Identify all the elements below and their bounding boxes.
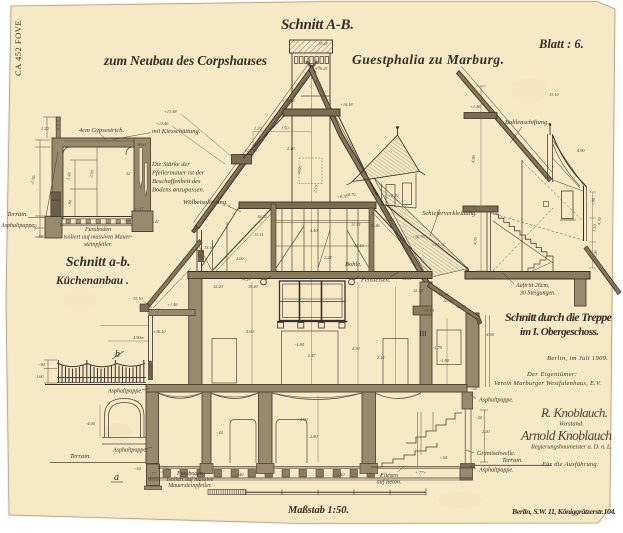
svg-text:Blatt : 6.: Blatt : 6. — [538, 37, 584, 51]
svg-text:13.18: 13.18 — [424, 308, 435, 313]
svg-text:Berlin, S.W. 11, Königgrätzers: Berlin, S.W. 11, Königgrätzerstr.104. — [511, 507, 616, 516]
svg-text:2.24: 2.24 — [324, 255, 332, 260]
svg-text:isoliert auf massive: isoliert auf massive — [167, 476, 214, 483]
svg-text:+13.48: +13.48 — [164, 109, 177, 114]
svg-text:Küchenanbau .: Küchenanbau . — [55, 275, 129, 287]
svg-text:Bodens anzupassen.: Bodens anzupassen. — [152, 187, 205, 194]
svg-text:Fussboden: Fussboden — [84, 227, 111, 233]
svg-text:Bohlenschiftung.: Bohlenschiftung. — [505, 119, 549, 126]
svg-text:Asphaltpappe.: Asphaltpappe. — [107, 389, 143, 395]
svg-text:Fensteisen.: Fensteisen. — [360, 277, 391, 284]
svg-text:Schnitt durch die Treppe: Schnitt durch die Treppe — [505, 310, 613, 324]
svg-text:isoliert auf massiven Mauer-: isoliert auf massiven Mauer- — [63, 234, 132, 241]
svg-text:-.46: -.46 — [124, 218, 132, 223]
svg-text:12.20: 12.20 — [213, 284, 224, 289]
svg-text:-.42: -.42 — [152, 219, 160, 224]
svg-text:2.10: 2.10 — [287, 146, 295, 151]
svg-text:13.10: 13.10 — [549, 92, 560, 97]
svg-text:2.47: 2.47 — [308, 353, 316, 358]
svg-text:4.90: 4.90 — [577, 148, 585, 153]
svg-text:1.40: 1.40 — [236, 472, 244, 477]
svg-text:Der Eigentümer:: Der Eigentümer: — [526, 371, 577, 378]
svg-text:13.10: 13.10 — [204, 245, 215, 250]
svg-text:14.24: 14.24 — [241, 277, 252, 282]
svg-text:Asphaltpappe.: Asphaltpappe. — [478, 468, 514, 474]
svg-text:1.20: 1.20 — [41, 126, 49, 131]
svg-text:2.20: 2.20 — [482, 429, 490, 434]
svg-text:10.46: 10.46 — [370, 223, 381, 228]
svg-text:4cm Gypsestrich.: 4cm Gypsestrich. — [79, 127, 125, 134]
svg-text:-.77: -.77 — [149, 471, 157, 476]
svg-text:12.18: 12.18 — [413, 288, 424, 293]
svg-text:Auftritt 26cm,: Auftritt 26cm, — [515, 282, 550, 289]
svg-text:+-.17: +-.17 — [134, 206, 145, 211]
svg-text:Maßstab 1:50.: Maßstab 1:50. — [287, 505, 349, 516]
svg-text:auf Beton.: auf Beton. — [377, 479, 402, 486]
svg-text:+16.18: +16.18 — [340, 102, 353, 107]
svg-text:Arnold Knoblauch: Arnold Knoblauch — [520, 428, 612, 443]
svg-text:-1.84: -1.84 — [295, 342, 305, 347]
svg-text:16.35: 16.35 — [257, 214, 268, 219]
svg-text:Asphaltpappe.: Asphaltpappe. — [0, 223, 36, 229]
svg-text:-.44: -.44 — [216, 430, 224, 435]
svg-text:Terrain.: Terrain. — [7, 211, 28, 218]
svg-text:4.90: 4.90 — [300, 417, 308, 422]
svg-text:III: III — [420, 330, 428, 338]
svg-text:-4.00: -4.00 — [86, 421, 96, 426]
svg-text:+8.20: +8.20 — [388, 193, 399, 198]
svg-text:im I. Obergeschoss.: im I. Obergeschoss. — [520, 326, 599, 338]
svg-text:13.11: 13.11 — [254, 232, 263, 237]
svg-text:zum Neubau des Corpshauses: zum Neubau des Corpshauses — [103, 53, 267, 68]
svg-text:Granitschwelle.: Granitschwelle. — [477, 451, 515, 457]
svg-text:54x54: 54x54 — [51, 198, 60, 202]
svg-text:2.14: 2.14 — [377, 355, 385, 360]
svg-text:+12.46: +12.46 — [156, 121, 169, 126]
svg-text:4.50: 4.50 — [352, 346, 360, 351]
svg-text:19.40: 19.40 — [248, 284, 259, 289]
svg-text:13.10: 13.10 — [133, 296, 144, 301]
svg-text:Schnitt a-b.: Schnitt a-b. — [66, 254, 131, 269]
svg-text:13.18: 13.18 — [456, 304, 467, 309]
svg-text:a: a — [114, 472, 119, 483]
svg-text:+16.18: +16.18 — [282, 98, 295, 103]
svg-text:Berlin, im Juli 1909.: Berlin, im Juli 1909. — [547, 355, 608, 362]
svg-text:2.00: 2.00 — [236, 256, 244, 261]
svg-text:Terrain.: Terrain. — [70, 453, 91, 460]
svg-text:+36.10: +36.10 — [153, 329, 166, 334]
svg-text:Schnitt A-B.: Schnitt A-B. — [281, 17, 354, 33]
svg-text:-.54: -.54 — [134, 466, 142, 471]
svg-text:-.54: -.54 — [475, 415, 483, 420]
svg-text:+10.76: +10.76 — [412, 234, 425, 239]
svg-text:14.10: 14.10 — [354, 243, 365, 248]
svg-text:30 Steigungen.: 30 Steigungen. — [519, 291, 556, 297]
svg-text:+8.70: +8.70 — [337, 194, 348, 199]
svg-text:1.00: 1.00 — [36, 374, 44, 379]
svg-text:Fliesen: Fliesen — [379, 473, 398, 479]
svg-text:Mauersteinpfeiler.: Mauersteinpfeiler. — [167, 482, 212, 489]
svg-text:Die Stärke der: Die Stärke der — [151, 161, 190, 168]
svg-text:+1.46: +1.46 — [470, 104, 481, 109]
svg-text:CA 452 FOVE: CA 452 FOVE — [13, 20, 23, 76]
svg-text:4.40: 4.40 — [310, 228, 318, 233]
svg-text:-1.90: -1.90 — [440, 358, 450, 363]
svg-text:-4.60: -4.60 — [485, 332, 495, 337]
svg-text:-.54: -.54 — [470, 386, 478, 391]
svg-text:2.80: 2.80 — [310, 434, 318, 439]
svg-text:Für die Ausführung:: Für die Ausführung: — [541, 461, 599, 468]
svg-text:R. Knoblauch.: R. Knoblauch. — [540, 405, 608, 420]
svg-text:4.60: 4.60 — [246, 329, 254, 334]
svg-text:-1.70: -1.70 — [433, 345, 443, 350]
svg-text:Asphaltpappe.: Asphaltpappe. — [478, 398, 514, 404]
svg-text:11.13: 11.13 — [351, 222, 360, 227]
svg-text:19.25: 19.25 — [318, 41, 329, 46]
svg-text:+19.25: +19.25 — [315, 66, 328, 71]
svg-text:+.77+: +.77+ — [415, 470, 426, 475]
svg-text:12.16: 12.16 — [443, 298, 454, 303]
svg-text:Beschaffenheit des: Beschaffenheit des — [152, 178, 201, 185]
svg-text:Pfeilermauer ist der: Pfeilermauer ist der — [151, 170, 205, 177]
svg-text:Terrain.: Terrain. — [502, 457, 523, 464]
svg-text:+1.46: +1.46 — [167, 302, 178, 307]
svg-text:+13.16: +13.16 — [244, 148, 257, 153]
svg-text:Guestphalia zu Marburg.: Guestphalia zu Marburg. — [352, 52, 504, 67]
svg-text:Bohle.: Bohle. — [345, 261, 362, 268]
svg-text:+14.34: +14.34 — [432, 242, 445, 247]
svg-text:-.90: -.90 — [38, 362, 46, 367]
svg-text:Regierungsbaumeister a. D. n.: Regierungsbaumeister a. D. n. L. — [530, 444, 612, 451]
svg-text:Wölbeisolierung.: Wölbeisolierung. — [183, 199, 228, 206]
svg-text:4.90m: 4.90m — [133, 335, 144, 340]
svg-text:+6.18: +6.18 — [438, 292, 449, 297]
svg-text:Vorstand.: Vorstand. — [559, 421, 584, 428]
svg-text:Verein Marburger Westfalenhaus: Verein Marburger Westfalenhaus, E.V. — [494, 380, 601, 387]
svg-text:-.54: -.54 — [440, 455, 448, 460]
svg-text:Asphaltpappe.: Asphaltpappe. — [112, 448, 148, 454]
svg-text:1.20: 1.20 — [254, 126, 262, 131]
svg-text:90x1: 90x1 — [138, 142, 146, 147]
svg-text:11.16: 11.16 — [384, 217, 394, 222]
svg-text:steinpfeiler.: steinpfeiler. — [84, 241, 112, 248]
svg-text:14.24: 14.24 — [402, 276, 413, 281]
svg-text:1.50: 1.50 — [281, 126, 289, 131]
svg-text:-.58: -.58 — [36, 234, 44, 239]
svg-text:1.40: 1.40 — [337, 472, 345, 477]
